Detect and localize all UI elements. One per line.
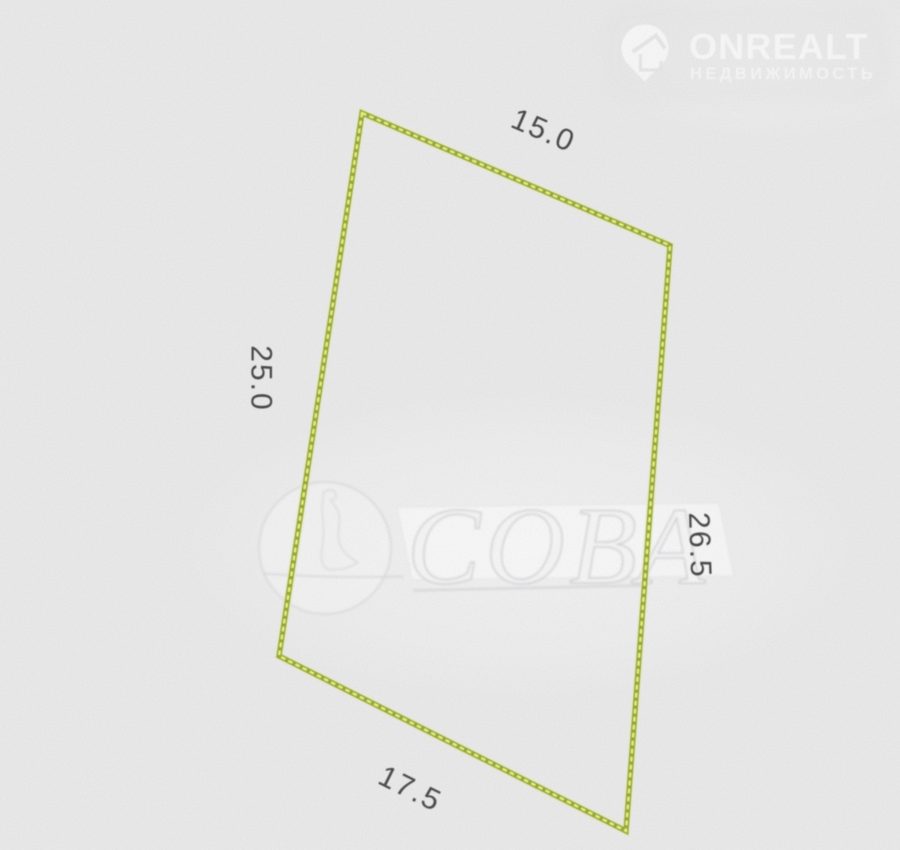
svg-text:26.5: 26.5 [682, 512, 717, 580]
svg-text:25.0: 25.0 [245, 345, 278, 411]
